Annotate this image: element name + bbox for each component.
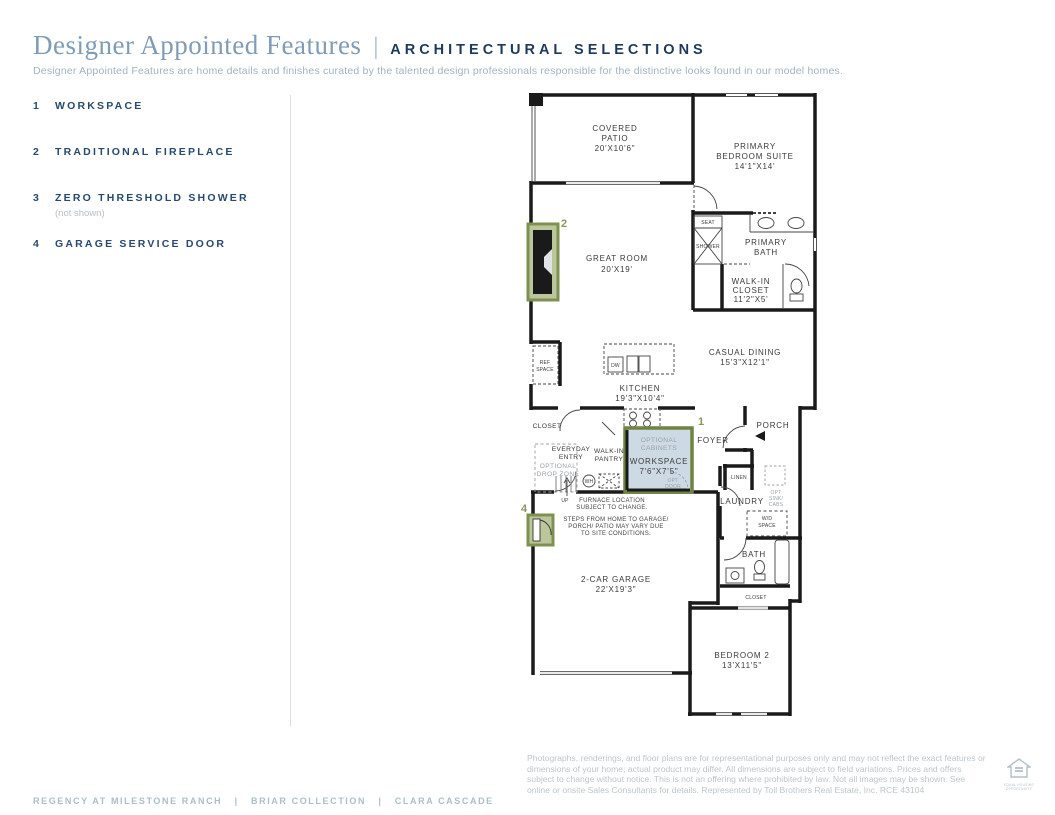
room-label-primary-bath: BATH	[754, 248, 778, 257]
room-label-bath: BATH	[742, 550, 766, 559]
feature-number: 4	[33, 238, 55, 250]
room-dims-walk-in-closet: 11'2"X5'	[734, 295, 769, 304]
room-dims-covered-patio: 20'X10'6"	[595, 144, 636, 153]
label-wh: WH	[585, 479, 594, 485]
floor-plan-walls	[531, 93, 816, 716]
feature-item-shower: 3 ZERO THRESHOLD SHOWER (not shown)	[33, 192, 283, 219]
room-label-workspace: WORKSPACE	[630, 457, 689, 466]
vertical-divider	[290, 95, 291, 727]
note-furnace: SUBJECT TO CHANGE.	[576, 505, 647, 511]
feature-number: 3	[33, 192, 55, 204]
equal-housing-house-icon	[1007, 758, 1031, 778]
footer-disclaimer: Photographs, renderings, and floor plans…	[527, 753, 989, 795]
feature-label: ZERO THRESHOLD SHOWER	[55, 192, 249, 204]
equal-housing-text: OPPORTUNITY	[1002, 787, 1036, 791]
feature-label: GARAGE SERVICE DOOR	[55, 238, 226, 250]
room-dims-bedroom2: 13'X11'5"	[722, 661, 762, 670]
note-steps: TO SITE CONDITIONS.	[581, 531, 651, 537]
plan-marker-workspace: 1	[698, 416, 704, 428]
feature-number: 2	[33, 146, 55, 158]
feature-note: (not shown)	[55, 208, 283, 219]
room-label-ref-space: REF	[540, 360, 551, 366]
room-label-everyday-entry: EVERYDAY	[552, 446, 591, 453]
floor-plan: 1 2 4 COVERED PATIO 20'X10'6" PRIMARY BE…	[520, 88, 820, 733]
plan-marker-fireplace: 2	[561, 218, 567, 230]
room-label-closet: CLOSET	[533, 423, 562, 430]
room-label-primary-suite: PRIMARY	[734, 142, 776, 151]
room-label-covered-patio: PATIO	[602, 134, 629, 143]
hall-bath-fixtures	[726, 540, 789, 584]
room-label-walk-in-closet: CLOSET	[733, 286, 770, 295]
page-title: Designer Appointed Features	[33, 30, 361, 61]
label-opt-door: DOOR	[665, 484, 681, 490]
room-dims-kitchen: 19'3"X10'4"	[615, 394, 665, 403]
room-dims-garage: 22'X19'3"	[596, 585, 637, 594]
feature-label: TRADITIONAL FIREPLACE	[55, 146, 235, 158]
patio-corner-post	[529, 93, 543, 106]
room-label-walk-in-pantry: PANTRY	[595, 456, 624, 463]
label-optional-drop-zone: DROP ZONE	[537, 471, 580, 478]
note-steps: PORCH/ PATIO MAY VARY DUE	[568, 524, 663, 530]
room-label-porch: PORCH	[757, 421, 790, 430]
footer-community-line: REGENCY AT MILESTONE RANCH | BRIAR COLLE…	[33, 794, 494, 808]
room-label-seat: SEAT	[701, 220, 715, 226]
highlight-fireplace	[528, 224, 558, 300]
room-label-covered-patio: COVERED	[592, 124, 637, 133]
entry-arrow-icon	[755, 431, 765, 441]
section-title: ARCHITECTURAL SELECTIONS	[390, 42, 706, 58]
note-steps: STEPS FROM HOME TO GARAGE/	[563, 517, 668, 523]
header: Designer Appointed Features | ARCHITECTU…	[33, 30, 707, 61]
room-label-great-room: GREAT ROOM	[586, 254, 648, 263]
room-label-linen: LINEN	[731, 475, 747, 481]
plan-marker-garage-door: 4	[521, 503, 528, 515]
room-label-primary-suite: BEDROOM SUITE	[716, 152, 794, 161]
room-label-bath-closet: CLOSET	[745, 595, 766, 601]
feature-item-workspace: 1 WORKSPACE	[33, 100, 283, 112]
feature-number: 1	[33, 100, 55, 112]
room-label-walk-in-closet: WALK-IN	[732, 277, 771, 286]
feature-item-garage-door: 4 GARAGE SERVICE DOOR	[33, 238, 283, 250]
note-furnace: FURNACE LOCATION	[579, 498, 645, 504]
room-dims-casual-dining: 15'3"X12'1"	[720, 358, 770, 367]
feature-item-fireplace: 2 TRADITIONAL FIREPLACE	[33, 146, 283, 158]
room-label-wd-space: W/D	[762, 516, 773, 522]
footer: REGENCY AT MILESTONE RANCH | BRIAR COLLE…	[33, 758, 494, 815]
floor-plan-windows	[532, 94, 817, 716]
room-label-foyer: FOYER	[697, 436, 729, 445]
room-label-bedroom2: BEDROOM 2	[714, 651, 769, 660]
room-dims-workspace: 7'6"X7'5"	[639, 467, 678, 476]
room-label-shower: SHOWER	[696, 244, 720, 250]
label-optional-drop-zone: OPTIONAL	[540, 463, 577, 470]
title-divider: |	[373, 34, 378, 61]
room-label-primary-bath: PRIMARY	[745, 238, 787, 247]
room-label-kitchen: KITCHEN	[620, 384, 661, 393]
page: Designer Appointed Features | ARCHITECTU…	[0, 0, 1055, 815]
room-label-ref-space: SPACE	[536, 367, 554, 373]
label-opt-sink: CABS	[769, 502, 784, 508]
equal-housing-logo: EQUAL HOUSING OPPORTUNITY	[1002, 758, 1036, 791]
room-dims-primary-suite: 14'1"X14'	[735, 162, 776, 171]
room-dims-great-room: 20'X19'	[601, 265, 633, 274]
label-dw: DW	[611, 363, 620, 369]
label-optional-cabinets: OPTIONAL	[641, 437, 678, 444]
header-description: Designer Appointed Features are home det…	[33, 65, 843, 77]
room-label-casual-dining: CASUAL DINING	[709, 348, 781, 357]
label-up: UP	[561, 498, 569, 504]
highlight-garage-service-door	[528, 515, 553, 545]
feature-label: WORKSPACE	[55, 100, 143, 112]
room-label-garage: 2-CAR GARAGE	[581, 575, 651, 584]
room-label-everyday-entry: ENTRY	[559, 454, 583, 461]
room-label-laundry: LAUNDRY	[720, 497, 764, 506]
room-label-walk-in-pantry: WALK-IN	[594, 448, 624, 455]
room-label-wd-space: SPACE	[758, 523, 776, 529]
label-optional-cabinets: CABINETS	[641, 445, 677, 452]
